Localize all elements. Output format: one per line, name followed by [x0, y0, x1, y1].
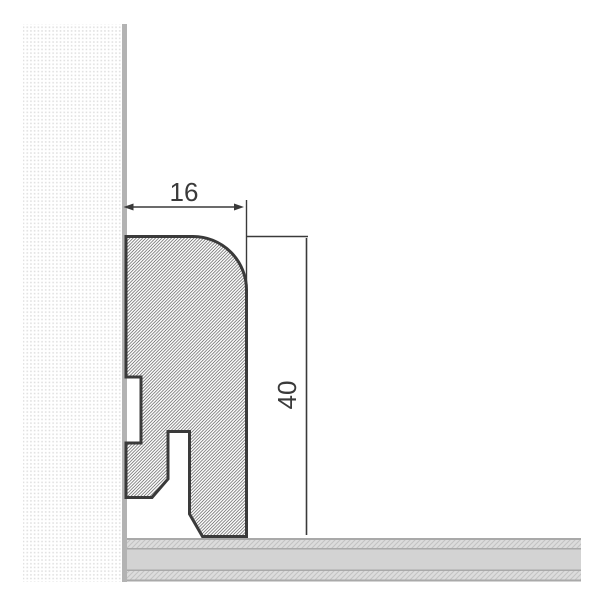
floor-bottom-border [127, 580, 581, 582]
floor-bottom-hatch-layer [127, 571, 581, 580]
skirting-profile-diagram: 16 40 [0, 0, 604, 604]
technical-drawing-canvas: 16 40 [0, 0, 604, 604]
wall-plaster-texture [23, 24, 122, 582]
width-dimension-label: 16 [170, 177, 199, 207]
floor-panel [127, 538, 581, 582]
floor-border-line [127, 548, 581, 550]
height-dimension-label: 40 [272, 381, 302, 410]
wall [23, 24, 127, 582]
floor-top-border [127, 538, 581, 540]
floor-border-line2 [127, 570, 581, 572]
floor-core-layer [127, 550, 581, 570]
floor-top-hatch-layer [127, 540, 581, 548]
